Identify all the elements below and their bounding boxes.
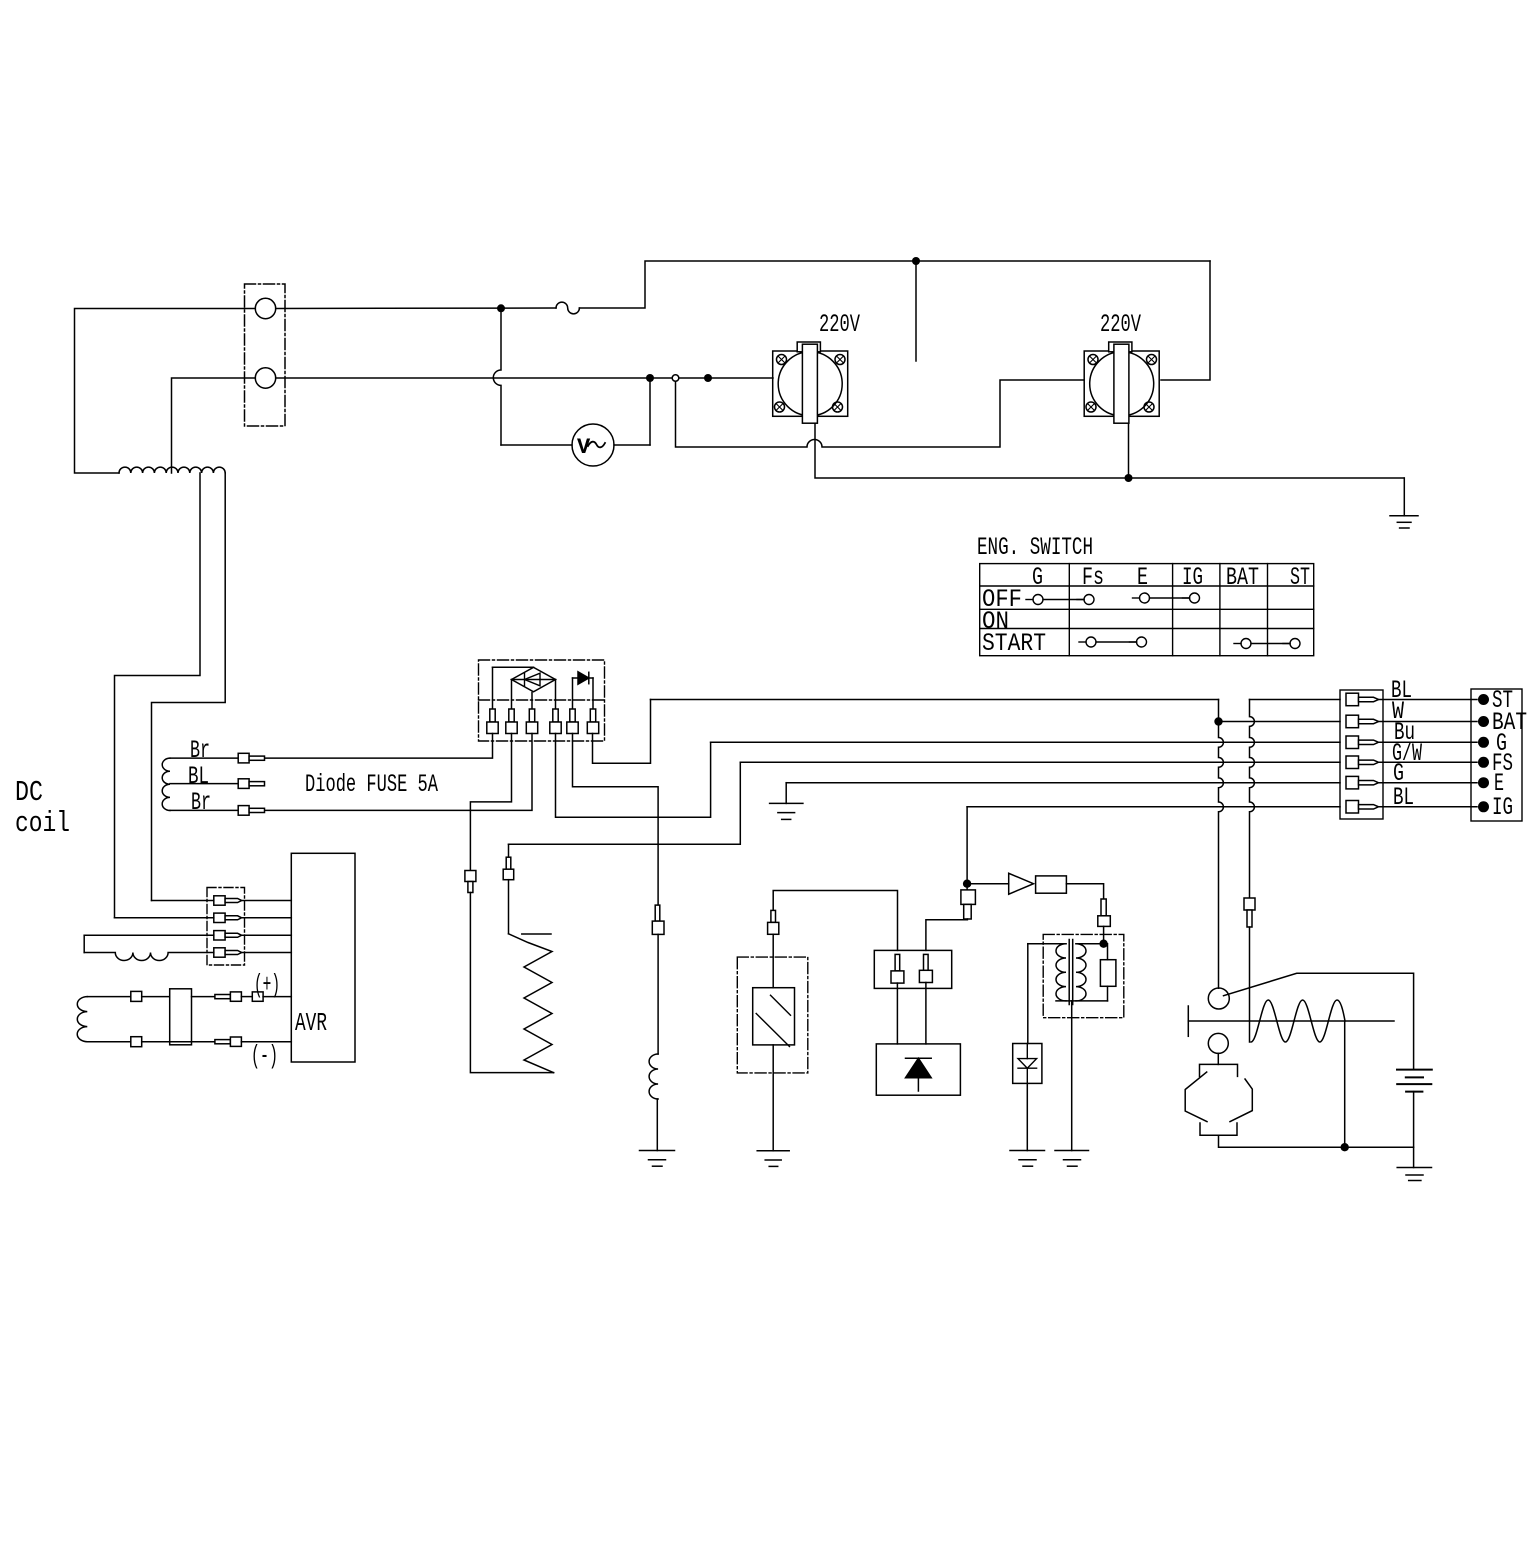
svg-text:(+): (+) — [254, 970, 280, 1000]
svg-text:AVR: AVR — [295, 1008, 327, 1038]
svg-text:(-): (-) — [251, 1041, 278, 1071]
svg-text:IG: IG — [1492, 793, 1513, 822]
svg-text:Br: Br — [191, 788, 211, 817]
svg-text:G: G — [1032, 563, 1043, 592]
svg-text:ENG. SWITCH: ENG. SWITCH — [977, 533, 1093, 562]
svg-text:220V: 220V — [1100, 310, 1141, 339]
svg-text:BAT: BAT — [1226, 563, 1259, 592]
svg-text:Fs: Fs — [1082, 563, 1104, 592]
svg-text:220V: 220V — [819, 310, 860, 339]
svg-text:coil: coil — [15, 807, 70, 840]
svg-text:E: E — [1137, 563, 1148, 592]
svg-text:BL: BL — [1393, 783, 1414, 812]
svg-text:START: START — [982, 629, 1046, 658]
svg-text:Br: Br — [190, 736, 210, 765]
svg-text:BL: BL — [188, 762, 209, 791]
svg-text:DC: DC — [15, 776, 43, 809]
svg-text:IG: IG — [1182, 563, 1203, 592]
svg-text:Diode FUSE 5A: Diode FUSE 5A — [305, 770, 438, 799]
svg-text:ST: ST — [1290, 563, 1310, 592]
